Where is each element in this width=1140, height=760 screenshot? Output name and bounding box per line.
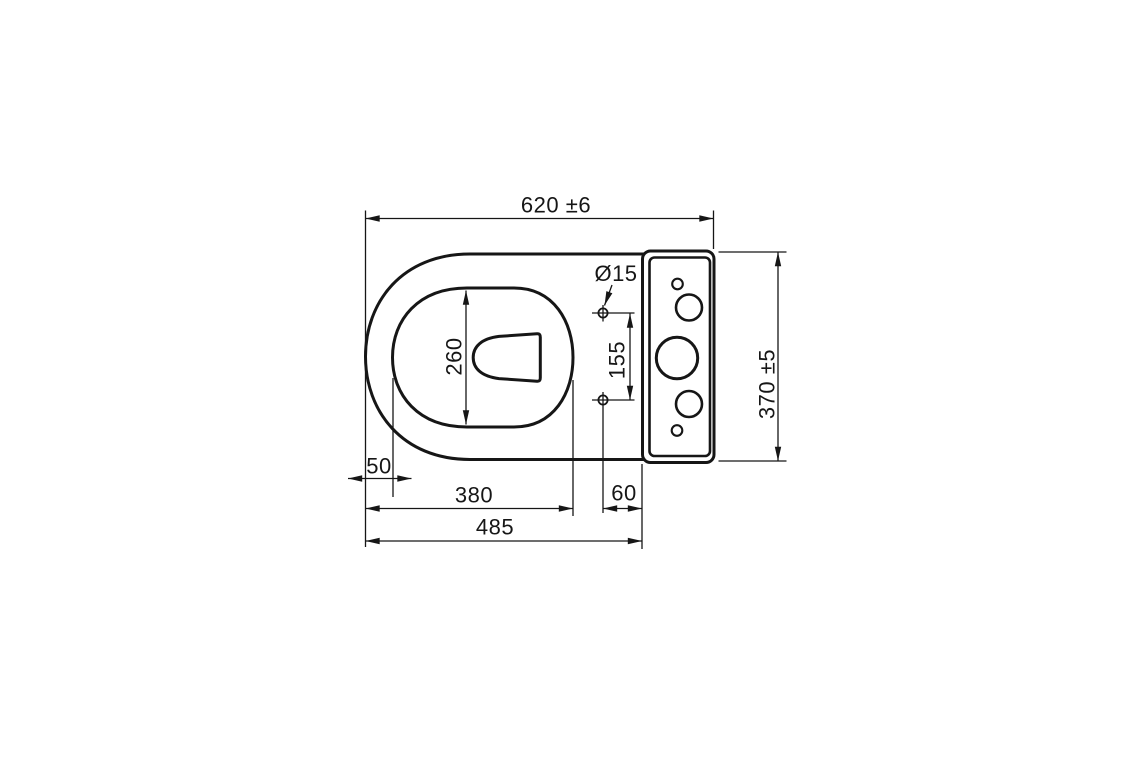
diameter-label-15: Ø15 (594, 261, 637, 286)
cistern-hole-small-top (672, 279, 683, 290)
diameter-callout-15: Ø15 (594, 261, 637, 306)
dimension-60: 60 (603, 481, 642, 509)
bowl-rim-outline (393, 288, 574, 427)
dimension-label-260: 260 (442, 337, 467, 375)
cistern-hole-large (656, 337, 697, 378)
dimension-485: 485 (366, 464, 643, 549)
diameter-leader-arrow (605, 285, 613, 306)
dimension-label-620: 620 ±6 (521, 193, 591, 218)
technical-drawing-canvas: 620 ±6 370 ±5 260 155 Ø15 50 (0, 0, 1140, 760)
dimension-label-485: 485 (476, 515, 514, 540)
cistern-hole-medium-bottom (676, 391, 702, 417)
dimension-155: 155 (605, 314, 631, 401)
dimension-260: 260 (442, 291, 467, 425)
dimension-label-50: 50 (366, 454, 391, 479)
cistern-hole-small-bottom (672, 425, 683, 436)
dimension-label-370: 370 ±5 (755, 349, 780, 419)
cistern-group (643, 251, 715, 463)
dimension-label-380: 380 (455, 483, 493, 508)
dimension-370: 370 ±5 (719, 252, 787, 461)
drawing-page: 620 ±6 370 ±5 260 155 Ø15 50 (0, 0, 1140, 760)
trapway-outline (473, 334, 540, 381)
dimension-label-60: 60 (611, 481, 636, 506)
cistern-outer-outline (643, 251, 715, 463)
cistern-hole-medium-top (676, 295, 702, 321)
dimension-label-155: 155 (605, 341, 630, 379)
dimension-380: 380 (366, 380, 574, 516)
